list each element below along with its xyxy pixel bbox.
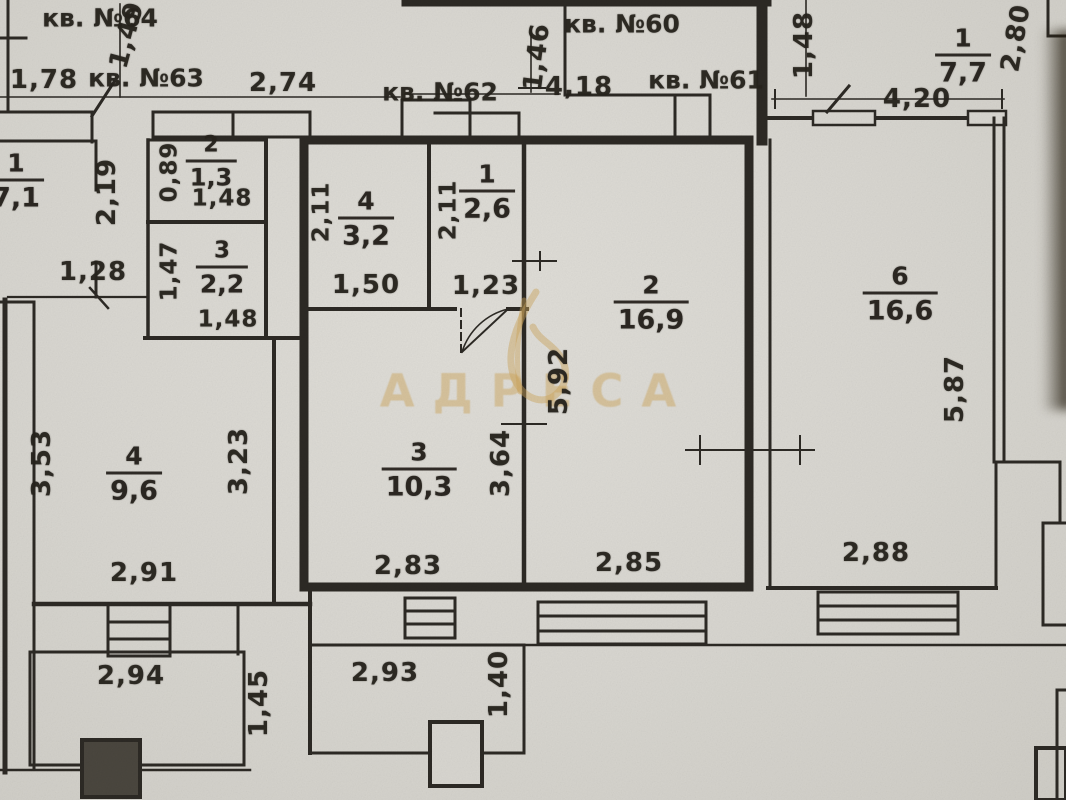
room-right-6: 6 16,6 <box>863 264 938 325</box>
room-area: 10,3 <box>382 468 457 501</box>
dim-2-11-a: 2,11 <box>311 182 334 243</box>
dim-2-94: 2,94 <box>97 663 165 689</box>
dim-1-48-right: 1,48 <box>791 11 817 79</box>
dim-2-83: 2,83 <box>374 553 442 579</box>
apt-63-label: кв. №63 <box>88 66 204 91</box>
dim-3-53: 3,53 <box>29 429 55 497</box>
dim-2-11-b: 2,11 <box>438 180 461 241</box>
dim-5-92: 5,92 <box>546 347 572 415</box>
balcony-walls <box>0 591 1066 800</box>
floorplan-photo: АДРЕСА кв. №64 1,49 1,78 кв. №63 2,74 кв… <box>0 0 1066 800</box>
dim-1-40: 1,40 <box>486 650 512 718</box>
room-center-3: 3 10,3 <box>382 440 457 501</box>
room-number: 3 <box>410 440 427 465</box>
room-number: 2 <box>642 273 659 298</box>
dim-2-91: 2,91 <box>110 560 178 586</box>
dim-5-87: 5,87 <box>942 355 968 423</box>
dim-2-19: 2,19 <box>94 158 120 226</box>
apt-62-label: кв. №62 <box>382 80 498 105</box>
dim-2-74: 2,74 <box>249 70 317 96</box>
room-right-1: 1 7,7 <box>935 26 991 87</box>
room-area: 7,1 <box>0 179 44 212</box>
room-number: 4 <box>357 189 374 214</box>
dim-2-93: 2,93 <box>351 660 419 686</box>
room-number: 1 <box>478 162 495 187</box>
dim-4-18: 4,18 <box>545 74 613 100</box>
dim-2-88: 2,88 <box>842 540 910 566</box>
dim-1-47: 1,47 <box>159 241 182 302</box>
room-center-4: 4 3,2 <box>338 189 394 250</box>
room-number: 4 <box>125 444 142 469</box>
room-area: 2,6 <box>459 190 515 223</box>
room-center-2: 2 16,9 <box>614 273 689 334</box>
room-area: 16,6 <box>863 292 938 325</box>
room-number: 1 <box>7 151 24 176</box>
room-area: 2,2 <box>196 266 248 297</box>
dim-0-89: 0,89 <box>159 142 182 203</box>
room-number: 6 <box>891 264 908 289</box>
room-left-2: 2 1,3 <box>186 135 237 190</box>
room-number: 1 <box>954 26 971 51</box>
apt-60-label: кв. №60 <box>564 12 680 37</box>
room-center-1: 1 2,6 <box>459 162 515 223</box>
room-area: 16,9 <box>614 301 689 334</box>
room-left-3: 3 2,2 <box>196 240 248 297</box>
dim-2-85: 2,85 <box>595 550 663 576</box>
dim-1-48-room2: 1,48 <box>192 188 253 211</box>
room-area: 3,2 <box>338 217 394 250</box>
dim-1-28: 1,28 <box>59 259 127 285</box>
dim-1-48-room3: 1,48 <box>198 309 259 332</box>
dim-3-23: 3,23 <box>226 427 252 495</box>
room-number: 2 <box>203 135 218 157</box>
room-left-1: 1 7,1 <box>0 151 44 212</box>
dim-1-23: 1,23 <box>452 273 520 299</box>
room-number: 3 <box>214 240 230 263</box>
apt-61-label: кв. №61 <box>648 68 764 93</box>
room-left-4: 4 9,6 <box>106 444 162 505</box>
dim-1-50: 1,50 <box>332 272 400 298</box>
dim-1-45: 1,45 <box>246 669 272 737</box>
dim-1-78: 1,78 <box>10 67 78 93</box>
dim-3-64: 3,64 <box>488 429 514 497</box>
dim-4-20: 4,20 <box>883 86 951 112</box>
room-area: 9,6 <box>106 472 162 505</box>
room-area: 7,7 <box>935 54 991 87</box>
